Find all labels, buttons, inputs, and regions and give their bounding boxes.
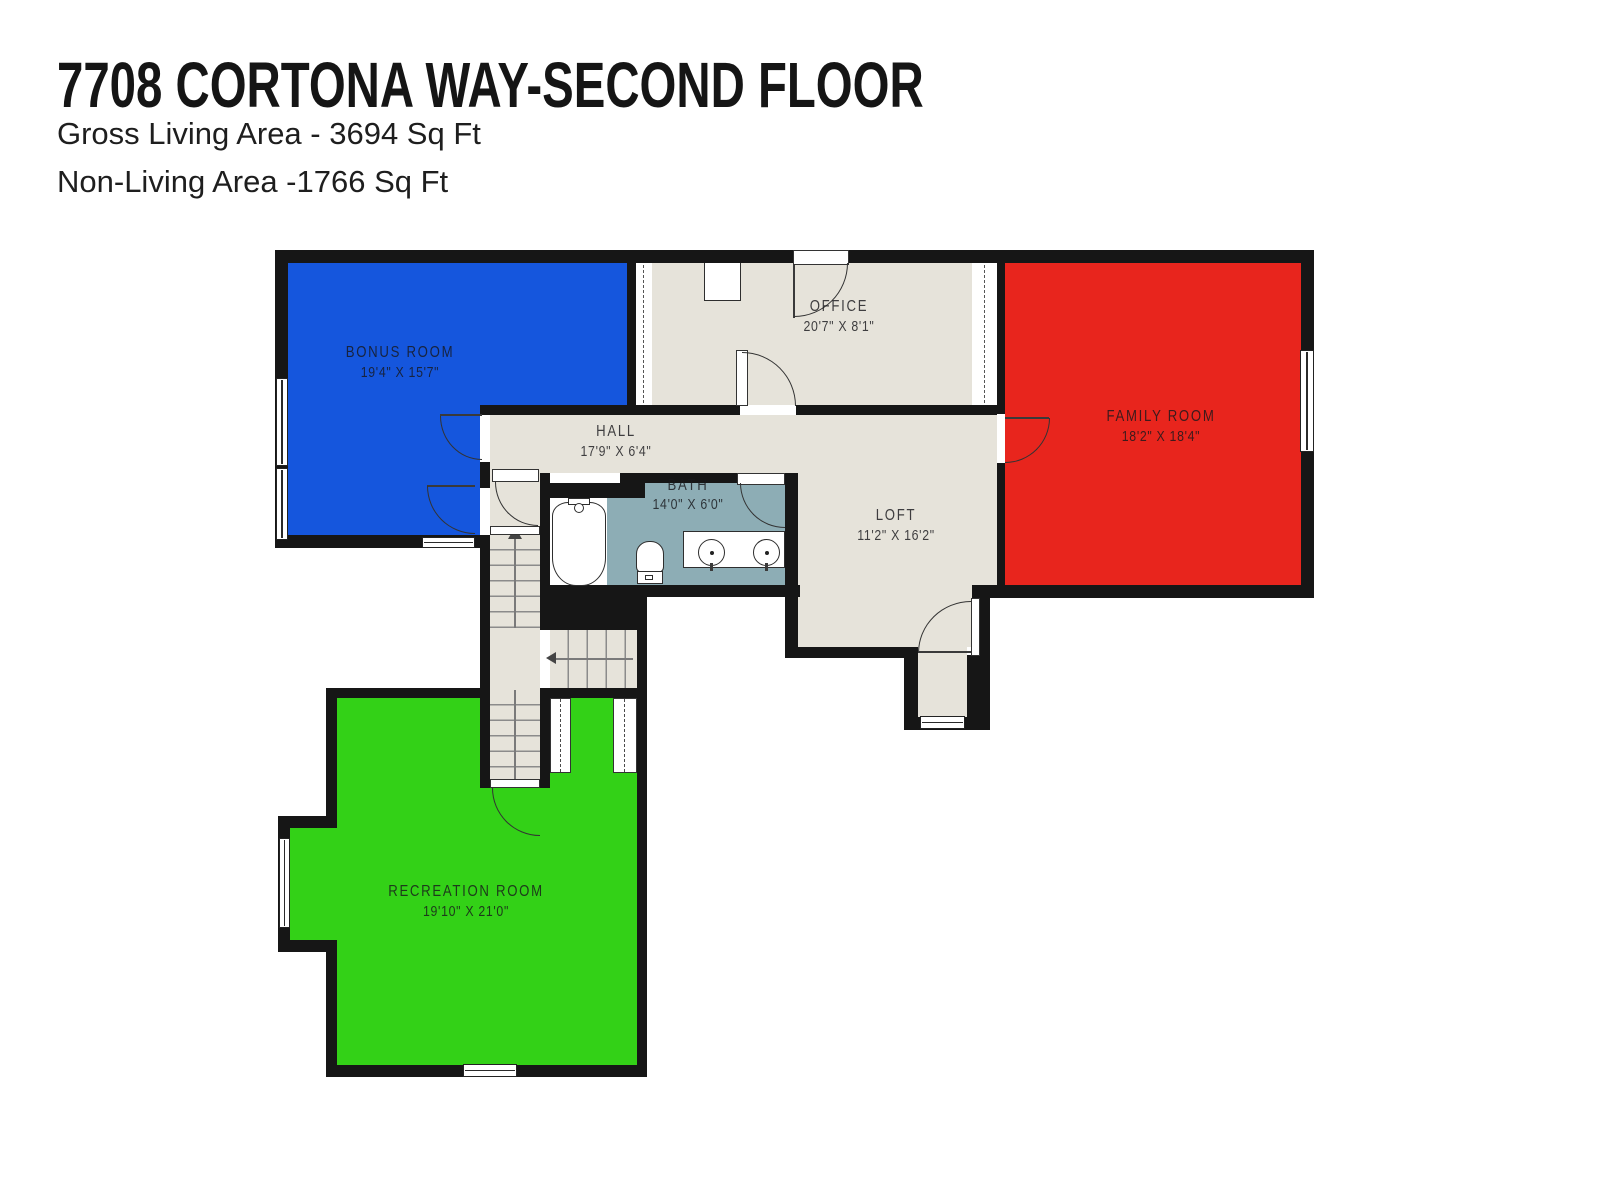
stairs-center-line [514,690,516,780]
stairs-center-line [514,539,516,628]
toilet-button-icon [645,575,653,580]
room-name: LOFT [857,505,935,526]
stairs-direction-line [556,658,633,660]
bonus-room-window [422,537,475,548]
room-name: HALL [581,421,652,442]
wall [540,597,640,630]
sink-faucet-icon [710,563,713,571]
recreation-bay-window [279,838,290,928]
wall [997,263,1005,415]
wall [972,585,1314,598]
bathtub-icon [552,502,606,586]
room-dims: 11'2" X 16'2" [857,526,935,546]
bonus-room-floor [288,263,627,405]
gross-living-area: Gross Living Area - 3694 Sq Ft [57,116,481,152]
office-open-rail-left [636,263,652,405]
sink-faucet-icon [765,563,768,571]
wall [326,940,337,1077]
loft-corridor-window [920,716,965,729]
sink-drain-icon [710,551,714,555]
wall [637,698,647,1077]
room-name: FAMILY ROOM [1107,406,1216,427]
bathtub-drain-icon [574,503,584,513]
room-name: BATH [653,477,724,495]
wall [637,597,647,698]
room-dims: 17'9" X 6'4" [581,442,652,462]
non-living-area: Non-Living Area -1766 Sq Ft [57,164,448,200]
bonus-room-window [276,468,288,540]
page-title: 7708 CORTONA WAY-SECOND FLOOR [57,48,924,122]
loft-storage-door-line [918,651,971,653]
bonus-room-window [276,378,288,466]
recreation-room-window [463,1064,517,1077]
room-label-hall: HALL 17'9" X 6'4" [581,421,652,462]
wall [785,473,798,658]
room-name: BONUS ROOM [346,342,455,363]
bonus-room-lower-door-gap [480,488,490,535]
family-room-window [1300,350,1314,452]
attic-knee-wall [550,698,571,773]
room-label-family: FAMILY ROOM 18'2" X 18'4" [1107,406,1216,447]
hall-floor [490,413,997,473]
office-open-rail-right [972,263,997,405]
office-hall-door-gap [740,405,796,415]
room-label-loft: LOFT 11'2" X 16'2" [857,505,935,546]
wall [550,688,647,698]
office-chase [704,263,741,301]
room-name: RECREATION ROOM [388,881,544,902]
wall [540,585,800,597]
wall [480,405,490,788]
sink-drain-icon [765,551,769,555]
wall [785,647,918,658]
room-dims: 20'7" X 8'1" [804,317,875,337]
room-label-recreation: RECREATION ROOM 19'10" X 21'0" [388,881,544,922]
room-label-office: OFFICE 20'7" X 8'1" [804,296,875,337]
wall [326,688,337,828]
wall [550,483,645,498]
attic-knee-wall [613,698,637,773]
room-dims: 19'4" X 15'7" [346,363,455,383]
stairs-left-arrow-icon [546,652,556,664]
stairs-mid-landing [490,628,540,690]
stairs-top-door-leaf [492,469,539,482]
loft-storage-door-leaf [971,598,980,656]
recreation-door-gap [490,779,540,788]
wall [627,263,636,415]
recreation-room-bay-floor [290,828,337,940]
stairs-top-threshold [490,526,540,535]
loft-corridor-floor [918,647,967,717]
room-name: OFFICE [804,296,875,317]
floor-plan: 7708 CORTONA WAY-SECOND FLOOR Gross Livi… [0,0,1600,1200]
wall [540,688,550,788]
room-label-bonus: BONUS ROOM 19'4" X 15'7" [346,342,455,383]
wall [326,688,480,698]
room-dims: 18'2" X 18'4" [1107,427,1216,447]
room-dims: 14'0" X 6'0" [653,495,724,515]
room-dims: 19'10" X 21'0" [388,902,544,922]
room-label-bath: BATH 14'0" X 6'0" [653,477,724,515]
toilet-bowl-icon [636,541,664,573]
family-room-door-gap [997,414,1005,463]
